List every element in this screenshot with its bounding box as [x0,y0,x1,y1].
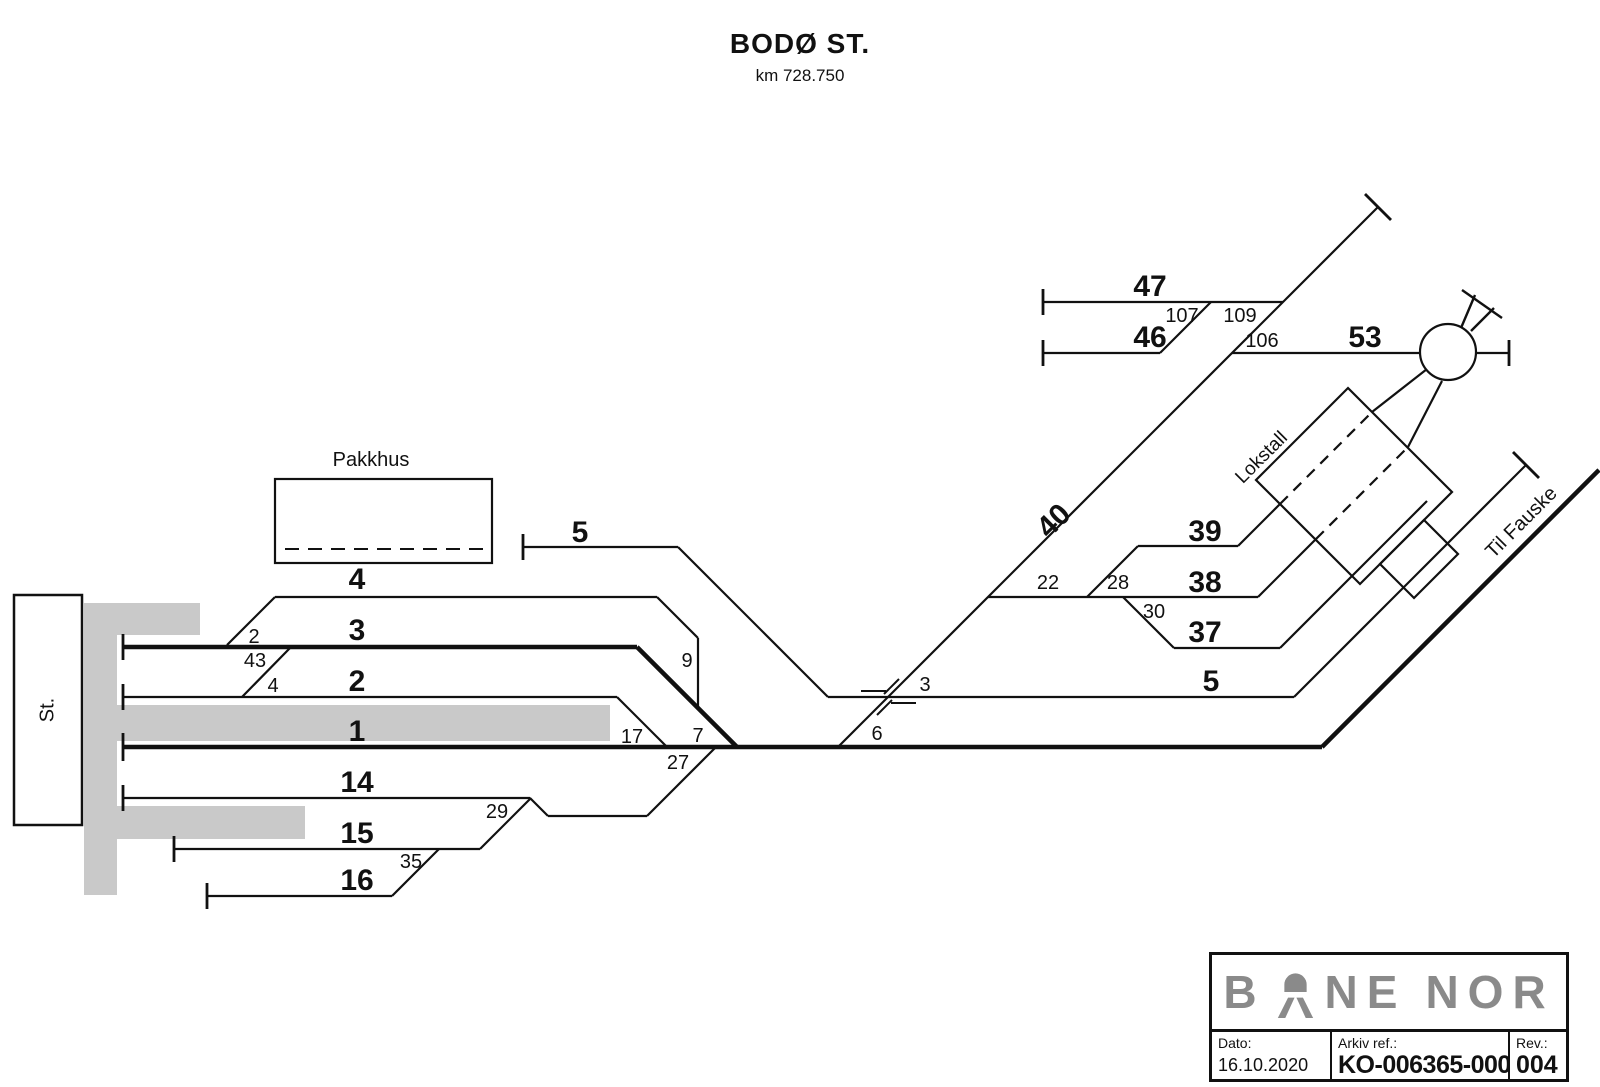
switch-29-label: 29 [486,801,508,823]
turntable-stub-line-1 [1461,295,1475,328]
switch-2-label: 2 [248,626,259,648]
date-value: 16.10.2020 [1218,1055,1324,1076]
switch-107-label: 107 [1165,305,1198,327]
pakkhus-label: Pakkhus [333,449,410,471]
date-cell: Dato: 16.10.2020 [1212,1032,1330,1082]
switch-35-label: 35 [400,851,422,873]
track-5-left-diagonal [678,547,828,697]
archive-ref-cell: Arkiv ref.: KO-006365-000 [1330,1032,1508,1082]
switch-number-labels: 2 43 4 9 17 7 27 29 35 6 3 22 28 30 107 … [244,305,1279,873]
track-38-label: 38 [1188,566,1221,599]
track-38-diagonal [1258,539,1316,597]
platform-top [84,603,200,635]
switch-7-label: 7 [692,725,703,747]
revision-value: 004 [1516,1051,1560,1080]
drawing-canvas: St. Pakkhus Lokstall [0,0,1600,1087]
switch-3-label: 3 [919,674,930,696]
turntable [1420,324,1476,380]
switch-106-label: 106 [1245,330,1278,352]
track-2-label: 2 [349,665,366,698]
revision-cell: Rev.: 004 [1508,1032,1566,1082]
track-14-step-down [530,798,548,816]
switch-28-label: 28 [1107,572,1129,594]
track-40-label: 40 [1030,497,1077,544]
track-47-label: 47 [1133,270,1166,303]
title-block: B NE NOR Dato: 16.10.2020 Arkiv ref.: KO… [1209,952,1569,1082]
drawing-km: km 728.750 [756,66,845,85]
track-16-label: 16 [340,864,373,897]
switch-109-label: 109 [1223,305,1256,327]
pakkhus-building [275,479,492,563]
revision-label: Rev.: [1516,1035,1560,1051]
track-3-label: 3 [349,614,366,647]
track-39-turntable-link [1372,369,1427,412]
track-39-label: 39 [1188,515,1221,548]
logo-letters-nor: NOR [1425,969,1554,1015]
track-14-label: 14 [340,766,374,799]
track-46-label: 46 [1133,321,1166,354]
switch-22-label: 22 [1037,572,1059,594]
track-37-label: 37 [1188,616,1221,649]
banenor-logo-mark [1275,966,1316,1018]
platform-vertical [84,603,117,895]
switch-6-label: 6 [871,723,882,745]
archive-ref-value: KO-006365-000 [1338,1051,1502,1080]
platform-track15 [84,806,305,839]
station-building-label: St. [36,698,58,722]
crossing-dash-4 [877,700,892,715]
banenor-logo: B NE NOR [1212,955,1566,1032]
logo-letter-b: B [1223,969,1265,1015]
drawing-title: BODØ ST. [730,28,870,59]
title-block-row: Dato: 16.10.2020 Arkiv ref.: KO-006365-0… [1212,1032,1566,1082]
switch-30-label: 30 [1143,601,1165,623]
track-schematic: St. Pakkhus Lokstall [0,0,1600,1087]
platform-track1 [84,705,610,741]
track-1-label: 1 [349,715,366,748]
turntable-stub-line-2 [1471,308,1494,331]
track-15-label: 15 [340,817,373,850]
track-4-diagonal [657,597,698,638]
switch-17-label: 17 [621,726,643,748]
track-5-right-label: 5 [1203,665,1220,698]
track-39-diagonal [1238,504,1280,546]
archive-ref-label: Arkiv ref.: [1338,1035,1502,1051]
turntable-stub [1461,290,1502,331]
switch-27-label: 27 [667,752,689,774]
track-53-label: 53 [1348,321,1381,354]
track-5-left-label: 5 [572,516,589,549]
track-4-label: 4 [349,563,366,596]
crossing-dash-2 [884,679,899,694]
switch-4-label: 4 [267,675,278,697]
switch-9-label: 9 [681,650,692,672]
logo-letters-ne: NE [1325,969,1407,1015]
switch-43-label: 43 [244,650,266,672]
date-label: Dato: [1218,1035,1324,1051]
track-38-turntable-link [1408,381,1442,447]
